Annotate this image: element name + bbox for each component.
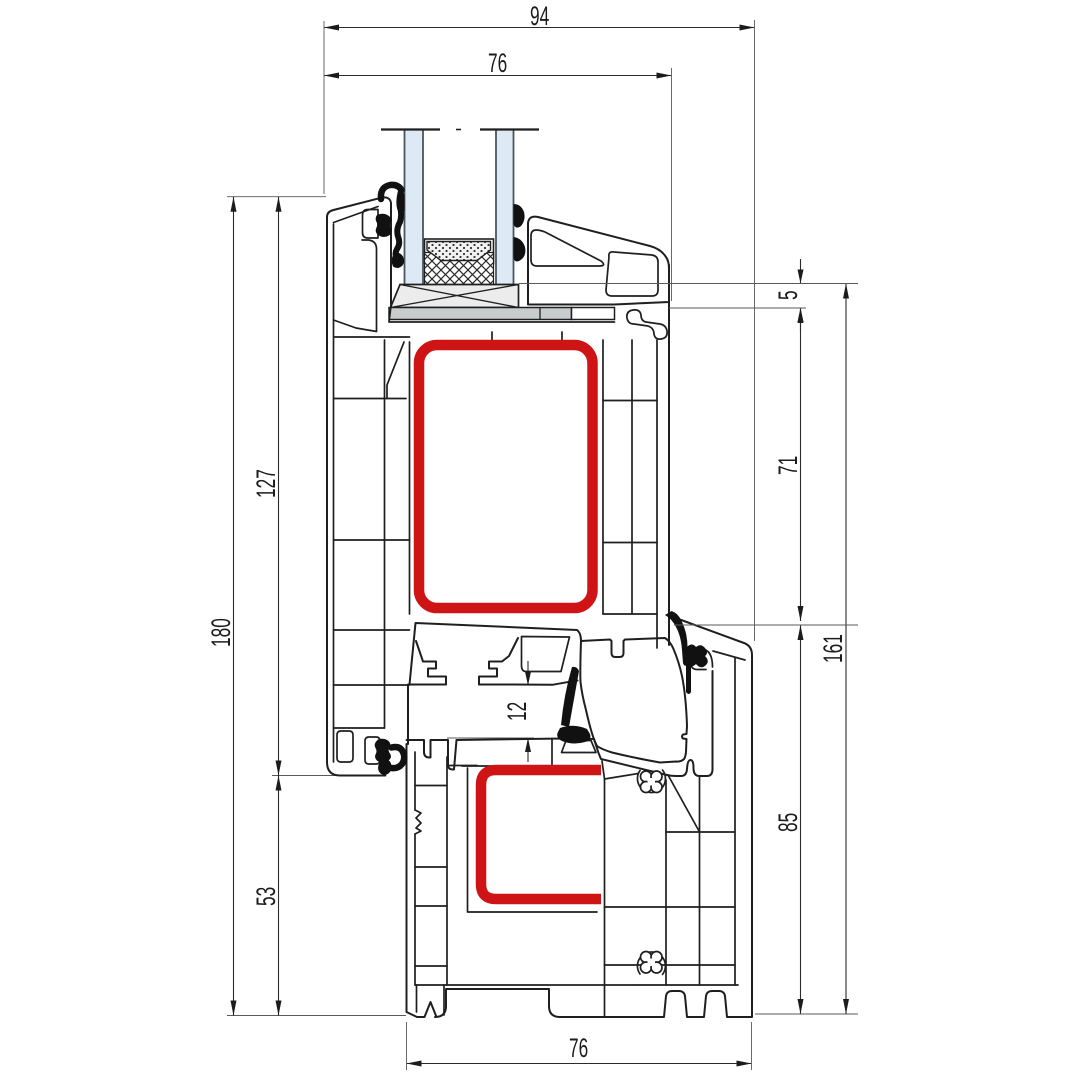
svg-text:180: 180 [205, 618, 236, 647]
svg-text:5: 5 [772, 290, 803, 300]
svg-text:76: 76 [569, 1032, 588, 1063]
svg-text:94: 94 [530, 0, 549, 31]
svg-text:53: 53 [250, 887, 281, 906]
svg-text:76: 76 [488, 47, 507, 78]
svg-text:127: 127 [250, 469, 281, 498]
svg-text:85: 85 [772, 813, 803, 832]
svg-text:71: 71 [772, 456, 803, 475]
svg-text:12: 12 [501, 702, 532, 721]
svg-text:161: 161 [817, 634, 848, 663]
